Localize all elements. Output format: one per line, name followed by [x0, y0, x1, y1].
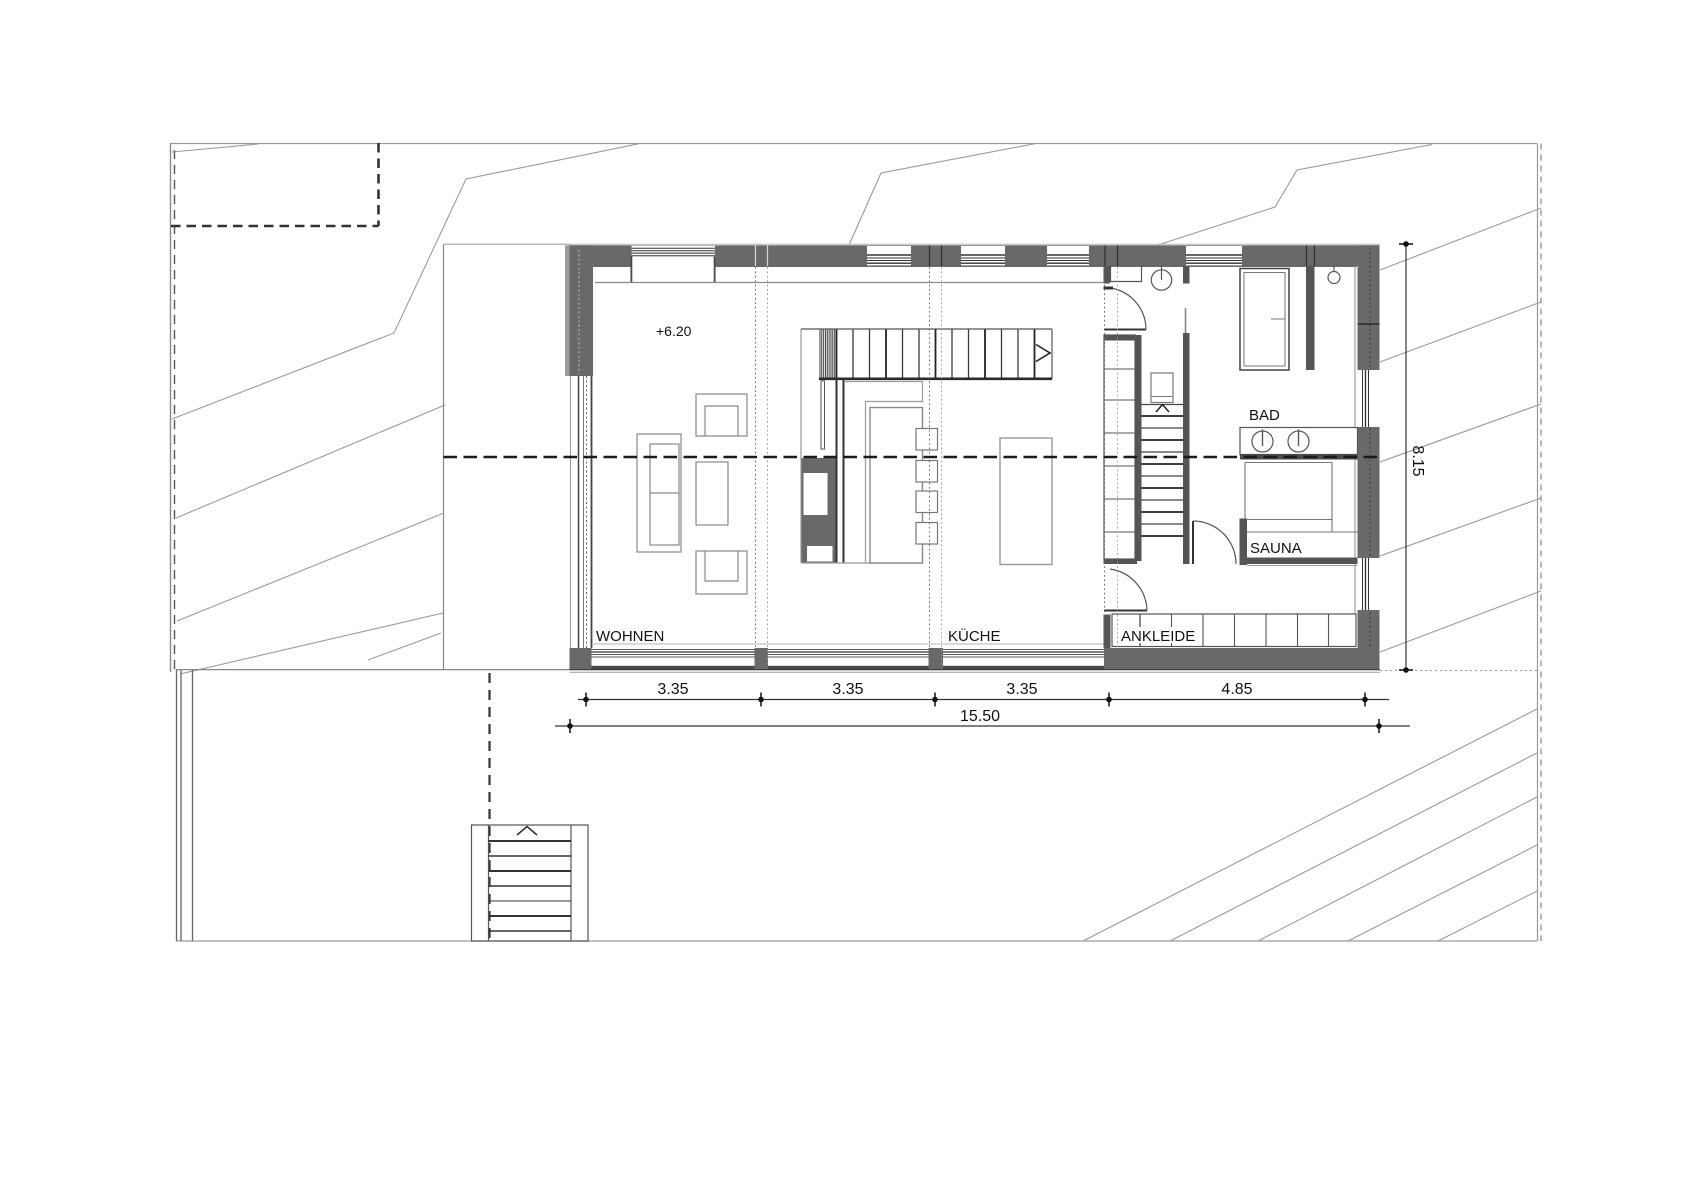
svg-text:SAUNA: SAUNA [1250, 540, 1302, 557]
svg-text:+6.20: +6.20 [656, 323, 692, 339]
svg-text:15.50: 15.50 [960, 708, 1000, 725]
svg-text:3.35: 3.35 [832, 681, 863, 698]
svg-text:8.15: 8.15 [1409, 445, 1426, 476]
svg-text:ANKLEIDE: ANKLEIDE [1121, 628, 1195, 645]
svg-text:3.35: 3.35 [657, 681, 688, 698]
svg-text:3.35: 3.35 [1006, 681, 1037, 698]
svg-text:WOHNEN: WOHNEN [596, 628, 664, 645]
svg-text:4.85: 4.85 [1221, 681, 1252, 698]
svg-text:BAD: BAD [1249, 407, 1280, 424]
svg-text:KÜCHE: KÜCHE [948, 627, 1001, 645]
